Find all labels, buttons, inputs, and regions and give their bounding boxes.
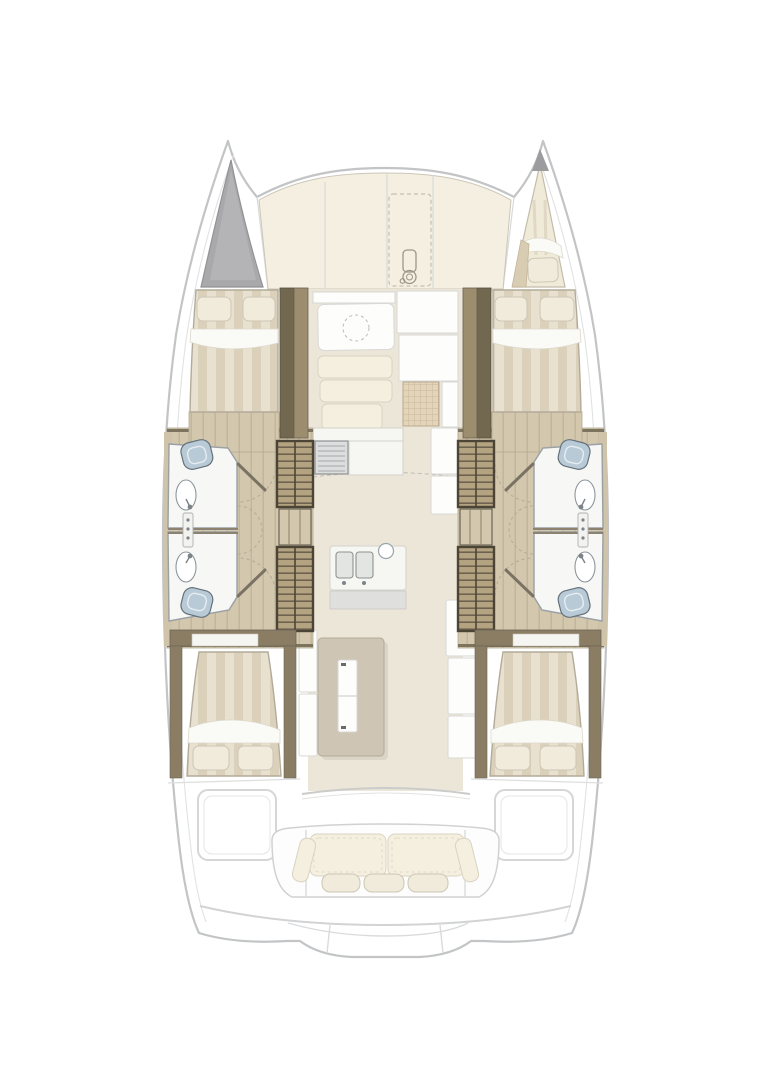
bench-pillow — [364, 874, 404, 892]
bench-pillow — [322, 874, 360, 892]
bench-back-cushion — [310, 834, 386, 876]
pillow — [495, 297, 527, 321]
cabinet — [448, 716, 477, 758]
fridge-latch — [341, 726, 346, 729]
galley-tall-unit — [431, 428, 458, 474]
port-forward-cabin — [189, 288, 308, 452]
salon-bench-cushion — [318, 356, 392, 378]
foredeck-sun-pads — [259, 173, 511, 289]
sink — [575, 480, 595, 510]
shower-column — [578, 513, 588, 547]
galley-lower-counter — [330, 591, 406, 609]
floor-plan-canvas — [0, 0, 771, 1080]
galley-tall-unit — [431, 476, 458, 514]
cabin-partition — [477, 288, 491, 438]
starboard-forward-cabin — [463, 288, 582, 452]
heads-divider — [533, 528, 603, 530]
salon-cabinet-strip — [313, 292, 395, 303]
port-companionway — [277, 441, 313, 631]
headboard-notch — [192, 634, 258, 646]
heads-divider — [168, 532, 238, 534]
cabinet — [448, 658, 477, 714]
headboard-notch — [513, 634, 579, 646]
foredeck — [259, 173, 511, 291]
pillow — [193, 746, 229, 770]
cabin-partition-light — [463, 288, 477, 438]
cabin-partition-light — [294, 288, 308, 438]
pillow — [495, 746, 530, 770]
bed-sheet-band — [493, 329, 581, 349]
sink — [176, 480, 196, 510]
bed-sheet-band — [190, 329, 278, 349]
faucet — [342, 581, 346, 585]
stair-landing — [279, 509, 311, 545]
pillow — [197, 297, 231, 321]
side-rail — [284, 646, 296, 778]
galley-counter-side — [349, 441, 403, 475]
sink — [176, 552, 196, 582]
nav-panel — [442, 382, 458, 427]
nav-panel — [399, 335, 458, 381]
nav-panel — [397, 291, 458, 333]
galley-counter-top — [313, 428, 403, 442]
heads-divider — [168, 528, 238, 530]
round-basin — [379, 544, 394, 559]
salon-bench-cushion — [322, 404, 382, 430]
pillow — [238, 746, 273, 770]
salon-table — [318, 303, 395, 350]
salon-bench-cushion — [320, 380, 392, 402]
cockpit — [272, 824, 499, 897]
pillow — [243, 297, 275, 321]
grid-mat — [403, 382, 439, 426]
bench-back-cushion — [388, 834, 464, 876]
pillow — [540, 297, 574, 321]
shower-column — [183, 513, 193, 547]
stove — [315, 441, 348, 474]
bench-pillow — [408, 874, 448, 892]
faucet — [362, 581, 366, 585]
sink — [575, 552, 595, 582]
heads-divider — [533, 532, 603, 534]
berth-pillow — [528, 257, 559, 282]
side-rail — [475, 646, 487, 778]
pillow — [540, 746, 576, 770]
side-rail — [589, 646, 601, 778]
catamaran-floor-plan — [0, 0, 771, 1080]
cabinet — [299, 694, 317, 756]
fridge-latch — [341, 663, 346, 666]
stair-landing — [460, 509, 492, 545]
cabin-partition — [280, 288, 294, 438]
side-rail — [170, 646, 182, 778]
sink-basin-right — [356, 552, 373, 578]
sink-basin-left — [336, 552, 353, 578]
starboard-companionway — [458, 441, 494, 631]
